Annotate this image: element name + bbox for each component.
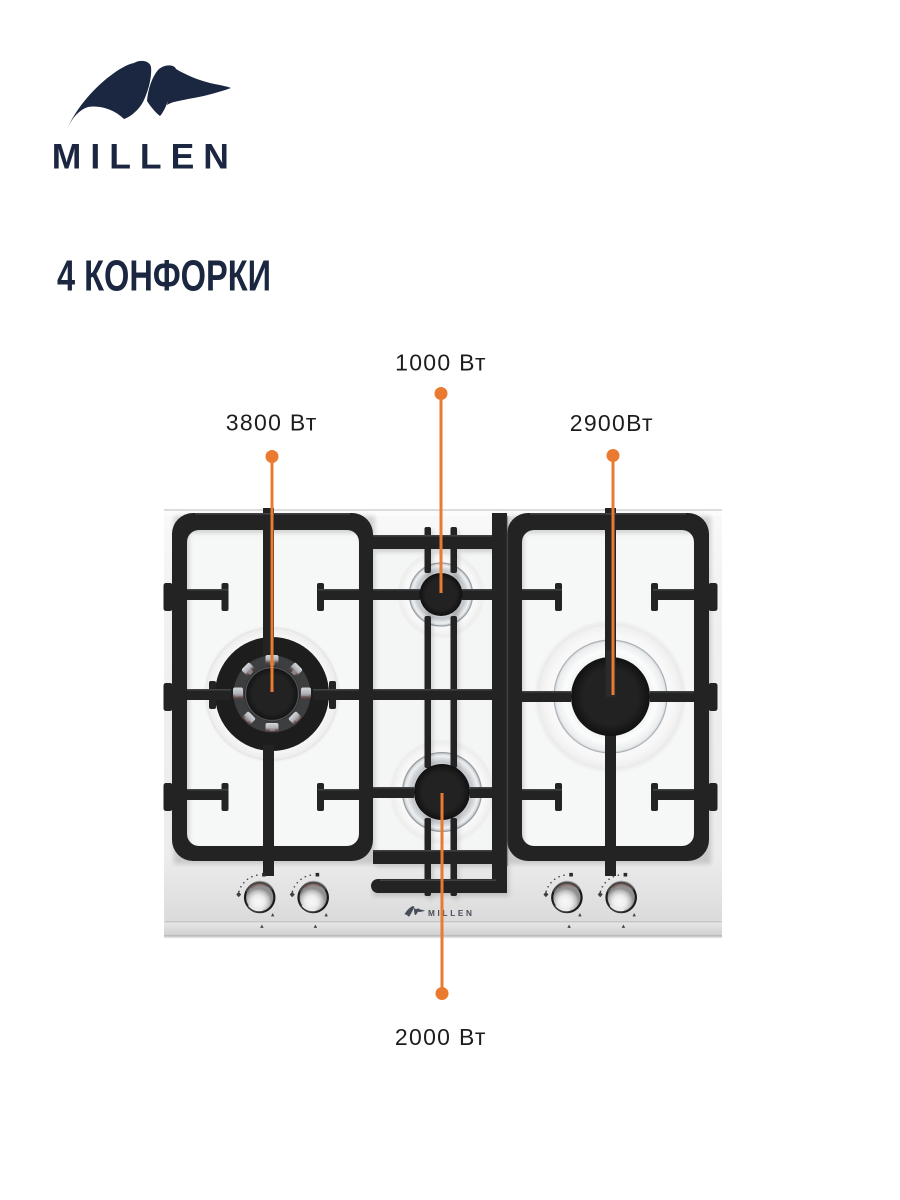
svg-text:MILLEN: MILLEN: [428, 909, 475, 918]
svg-text:2900Вт: 2900Вт: [570, 410, 654, 436]
svg-text:3800 Вт: 3800 Вт: [226, 410, 318, 436]
svg-text:2000 Вт: 2000 Вт: [395, 1024, 487, 1050]
svg-text:4 КОНФОРКИ: 4 КОНФОРКИ: [57, 253, 271, 301]
svg-text:1000 Вт: 1000 Вт: [395, 350, 487, 376]
svg-text:MILLEN: MILLEN: [52, 137, 238, 177]
